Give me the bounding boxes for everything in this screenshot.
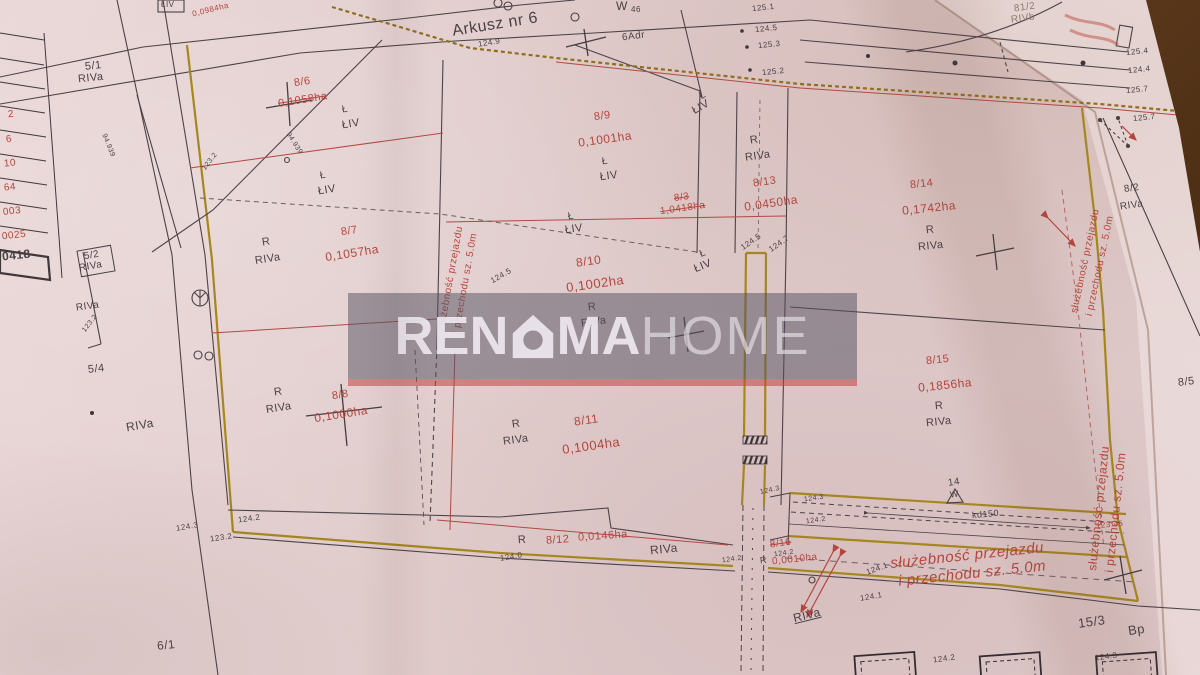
map-label: 6/1 — [156, 638, 175, 652]
map-label: R — [760, 556, 768, 566]
map-label: 125.1 — [752, 3, 775, 13]
map-label: 124.9 — [478, 37, 502, 48]
map-label: 0,1002ha — [565, 273, 624, 294]
map-label: RIVa — [265, 401, 292, 416]
map-label: 125.7 — [1126, 85, 1149, 95]
map-label: 8/15 — [925, 354, 949, 367]
map-label: 8/10 — [575, 253, 602, 268]
watermark-text-light: HOME — [641, 305, 811, 367]
map-label: R — [518, 535, 527, 547]
map-label: 8/5 — [1177, 376, 1195, 389]
map-label: 124.3 — [1095, 651, 1118, 662]
map-label: R — [749, 134, 759, 146]
map-label: RIVb — [1010, 12, 1035, 25]
map-label: 8/12 — [546, 534, 570, 547]
map-label: 8/6 — [293, 76, 311, 89]
map-label: 8/7 — [340, 225, 358, 238]
map-label: RIVa — [78, 260, 103, 274]
map-label: 124.3 — [759, 485, 780, 496]
map-label: 0418 — [1, 248, 31, 263]
map-label: ŁIV — [317, 184, 337, 198]
map-label: 10 — [4, 158, 17, 169]
map-label: 124.2 — [722, 555, 743, 565]
map-label: 124.5 — [490, 267, 514, 285]
map-label: 0,1856ha — [918, 376, 973, 394]
map-label: ŁIV — [690, 98, 711, 117]
map-label: 124.3 — [175, 521, 199, 533]
map-label: 2 — [7, 110, 14, 121]
map-label: 125.4 — [1126, 47, 1149, 57]
map-label: R — [511, 418, 521, 430]
map-label: RIVa — [502, 433, 529, 447]
map-label: 124.2 — [933, 653, 956, 664]
watermark: REN MA HOME — [348, 293, 857, 386]
map-label: R — [273, 386, 283, 398]
map-label: 0,1000ha — [313, 404, 368, 424]
map-label: 8/11 — [573, 412, 599, 427]
map-label: 94.939 — [285, 131, 304, 155]
map-label: RIVa — [125, 417, 154, 434]
map-label: 0,0010ha — [772, 553, 819, 568]
map-label: 0,1057ha — [324, 243, 379, 263]
map-label: 0,0984ha — [192, 2, 230, 19]
map-label: kd150 — [972, 509, 1000, 520]
map-label: Ł — [319, 171, 327, 182]
watermark-text-bold-post: MA — [557, 305, 641, 367]
map-label: Arkusz nr 6 — [451, 10, 539, 39]
photo-of-cadastral-map: 26106400300250418ŁIV0,0984haArkusz nr 61… — [0, 0, 1200, 675]
map-label: RIVa — [744, 149, 771, 163]
map-label: 123.2 — [210, 532, 233, 543]
map-label: ŁIV — [599, 170, 618, 183]
map-label: 124.2 — [806, 516, 827, 526]
map-label: 94.939 — [100, 133, 116, 158]
map-label: RIVa — [75, 300, 100, 313]
map-label: ŁIV — [161, 1, 175, 9]
map-label: ŁIV — [693, 258, 714, 275]
map-label: ŁIV — [564, 223, 583, 236]
map-label: 003 — [3, 206, 22, 218]
map-label: 124.1 — [865, 561, 889, 576]
map-label: 0,0146ha — [578, 529, 629, 543]
map-label: 124.2 — [238, 513, 261, 524]
map-label: 8/8 — [331, 389, 349, 402]
map-label: 0,1001ha — [577, 129, 632, 148]
map-label: RIVa — [649, 542, 678, 557]
map-label: 124.5 — [755, 24, 778, 34]
map-label: Ł — [601, 157, 608, 168]
map-label: 6 — [5, 135, 12, 146]
map-label: 0025 — [2, 230, 27, 242]
map-label: 8/2 — [1123, 183, 1140, 195]
map-label: 5/4 — [87, 363, 105, 376]
map-label: Ł — [341, 105, 349, 116]
map-label: W — [616, 0, 628, 12]
map-label: B — [1191, 196, 1199, 207]
map-label: 0,1742ha — [902, 199, 957, 217]
map-label: Ł — [567, 212, 574, 223]
map-label: 64 — [4, 182, 17, 193]
map-label: 14 — [947, 477, 960, 489]
map-label: 8/9 — [593, 110, 611, 123]
map-paper-sheet: 26106400300250418ŁIV0,0984haArkusz nr 61… — [0, 0, 1200, 675]
map-label: 125.3 — [758, 40, 781, 50]
map-label: R — [934, 401, 944, 413]
watermark-red-bar — [348, 379, 857, 386]
map-label: 8/13 — [752, 175, 777, 189]
map-label: 123.2 — [201, 151, 219, 171]
map-label: RIVa — [792, 606, 822, 624]
map-label: R — [925, 225, 935, 237]
map-label: ŁIV — [341, 118, 361, 132]
map-label: RIVa — [254, 252, 281, 267]
map-label: 1,0418ha — [660, 201, 707, 217]
map-label: 0,0450ha — [743, 193, 798, 212]
watermark-text-bold-pre: REN — [395, 305, 509, 367]
map-label: 124.1 — [859, 591, 883, 603]
map-label: RIVa — [1119, 199, 1144, 212]
map-label: 6Adr — [621, 31, 645, 44]
map-label: RIVa — [77, 72, 104, 86]
map-label: 46 — [631, 6, 641, 14]
map-label: RIVa — [917, 240, 944, 254]
home-icon — [511, 313, 555, 359]
map-label: Bp — [1127, 622, 1146, 637]
map-label: 0,1058ha — [277, 91, 328, 110]
map-label: 124.4 — [1128, 65, 1151, 75]
map-label: 0,1004ha — [561, 435, 620, 456]
map-label: 124.0 — [499, 551, 523, 563]
watermark-band: REN MA HOME — [348, 293, 857, 379]
map-label: 124.7 — [768, 234, 791, 253]
map-label: W — [949, 489, 959, 499]
map-label: 123.2 — [81, 313, 99, 333]
map-label: 15/3 — [1077, 613, 1106, 630]
map-label: 8/14 — [909, 178, 933, 191]
map-label: R — [261, 236, 271, 248]
map-label: 125.2 — [762, 67, 785, 77]
map-label: 124.3 — [804, 494, 825, 504]
map-label: RIVa — [925, 416, 952, 430]
map-label: 124.5 — [740, 232, 763, 251]
map-label: 125.7 — [1133, 113, 1156, 123]
